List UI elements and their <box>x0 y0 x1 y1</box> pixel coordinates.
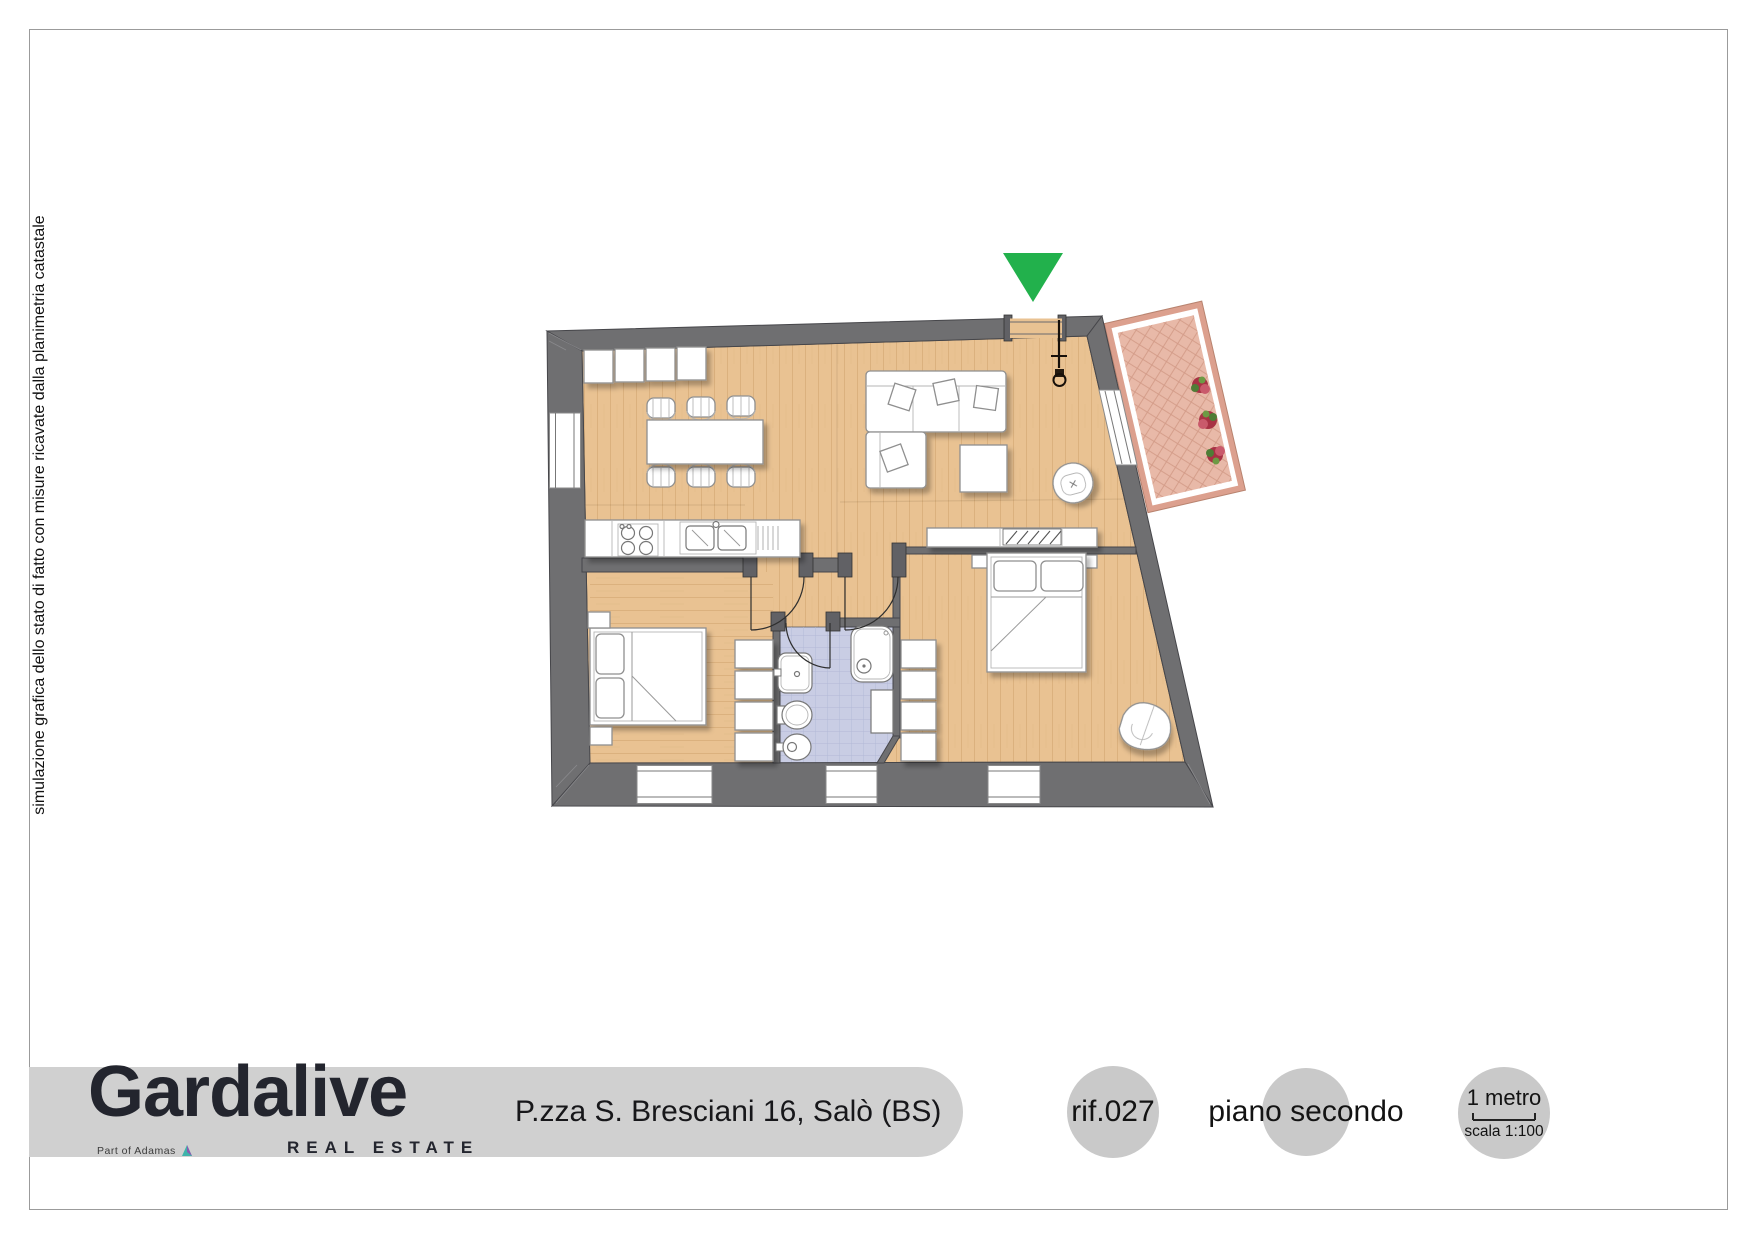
reference-badge: rif.027 <box>1067 1066 1159 1158</box>
reference-label: rif.027 <box>1071 1095 1154 1129</box>
scale-badge: 1 metro scala 1:100 <box>1458 1067 1550 1159</box>
dining-set <box>647 396 763 487</box>
brand-partner: Part of Adamas <box>97 1144 194 1158</box>
brand-logo: Gardalive REAL ESTATE Part of Adamas <box>88 1056 488 1160</box>
bed-double-left <box>590 628 706 725</box>
scale-ratio-label: scala 1:100 <box>1464 1123 1543 1141</box>
adamas-logo-icon <box>180 1144 194 1158</box>
brand-name: Gardalive <box>88 1056 488 1128</box>
property-address: P.zza S. Bresciani 16, Salò (BS) <box>515 1067 941 1157</box>
shower <box>851 626 893 682</box>
sideboard <box>927 528 1097 547</box>
scale-bar-icon <box>1470 1112 1538 1122</box>
nightstand <box>590 727 612 745</box>
bath-sink <box>774 653 812 693</box>
coffee-table <box>960 445 1007 492</box>
entrance-marker-icon <box>1003 253 1063 302</box>
bed-double-right <box>987 553 1086 672</box>
floor-label: piano secondo <box>1208 1095 1403 1129</box>
sink <box>680 522 778 555</box>
floor-badge: piano secondo <box>1262 1068 1350 1156</box>
brand-tagline: REAL ESTATE <box>287 1138 479 1158</box>
kitchen-counter <box>585 520 800 557</box>
nightstand <box>588 612 610 628</box>
dining-table <box>647 420 763 464</box>
brand-partner-label: Part of Adamas <box>97 1145 176 1157</box>
scale-length-label: 1 metro <box>1467 1085 1542 1111</box>
bath-cabinet <box>871 690 893 733</box>
